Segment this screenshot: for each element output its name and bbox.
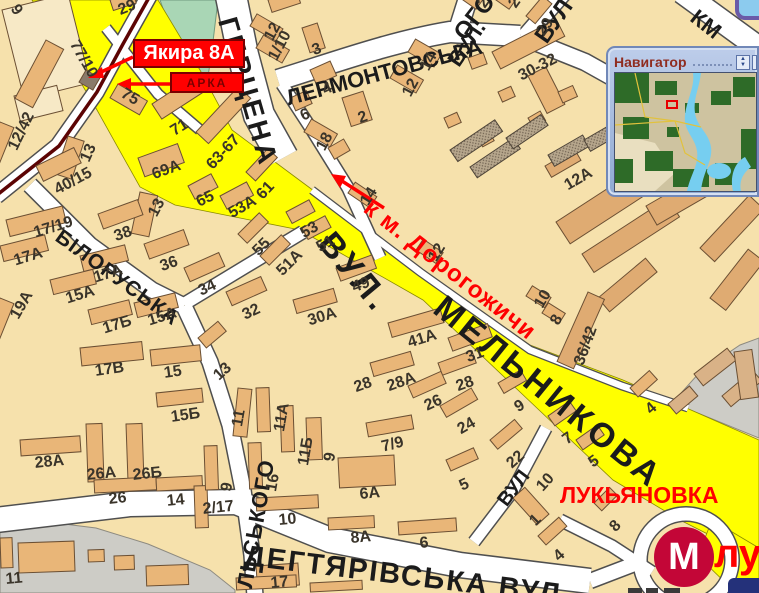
arch-callout: АРКА: [170, 72, 244, 93]
address-callout-text: Якира 8А: [143, 42, 234, 65]
spinner-down-icon: ▼: [740, 62, 746, 68]
minimap-graphics: [615, 73, 756, 191]
building-number: 11: [5, 571, 23, 588]
navigator-minimap[interactable]: [614, 72, 757, 192]
metro-station-badge: М: [654, 527, 714, 587]
building-number: 2/17: [202, 499, 235, 518]
building-number: 14: [166, 492, 185, 510]
building-number: 28А: [34, 453, 65, 472]
metro-letter: М: [668, 536, 700, 579]
address-callout: Якира 8А: [133, 39, 245, 68]
navigator-zoom-spinner[interactable]: ▲ ▼: [736, 55, 750, 70]
building-number: 26Б: [132, 465, 163, 484]
building-number: 8А: [350, 529, 372, 547]
building-number: 6: [419, 535, 429, 552]
navigator-dotted-leader: [693, 54, 732, 66]
building-number: 26: [108, 490, 127, 508]
clipped-text-fragments: [628, 588, 680, 593]
navigator-panel: Навигатор ▲ ▼: [606, 46, 759, 197]
building-number: 17: [270, 574, 289, 591]
corner-widget-bottom-right: [728, 578, 759, 593]
district-label: ЛУКЬЯНОВКА: [560, 484, 718, 507]
navigator-title: Навигатор: [614, 54, 687, 70]
building-number: 26А: [86, 465, 117, 484]
building-number: 6А: [359, 485, 381, 503]
building-number: 11: [230, 408, 249, 427]
building-number: 10: [278, 511, 297, 528]
navigator-titlebar: Навигатор ▲ ▼: [614, 52, 757, 72]
navigator-cut-button[interactable]: [752, 55, 757, 70]
corner-widget-top-right: [735, 0, 759, 20]
building-number: 15: [163, 364, 183, 382]
map-canvas[interactable]: ГЕРЦЕНАЛЕРМОНТОВСЬКАВУЛ.ОГОВУЛКМВУЛ.МЕЛЬ…: [0, 0, 759, 593]
metro-station-name-fragment: лу: [714, 534, 759, 574]
arch-callout-text: АРКА: [187, 76, 228, 90]
building-number: 16: [264, 472, 283, 492]
